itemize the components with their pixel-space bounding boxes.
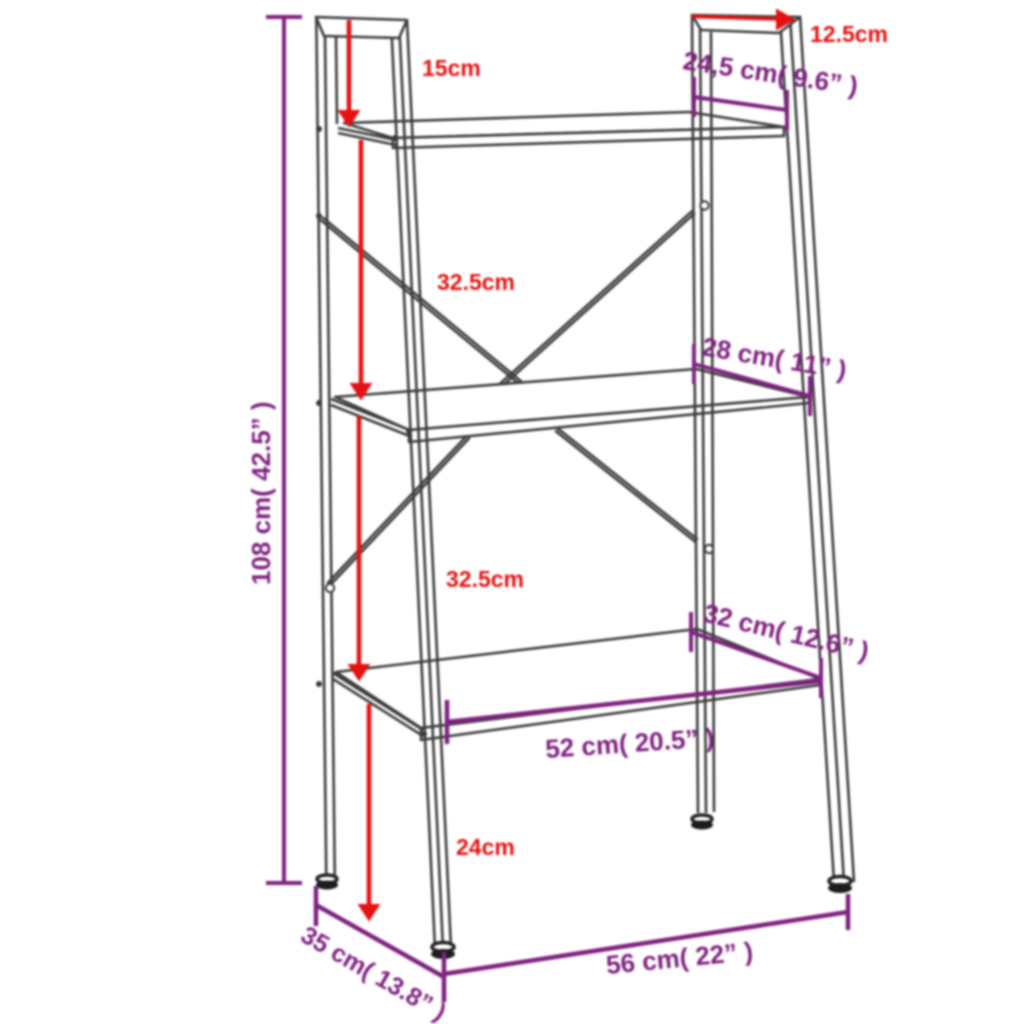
svg-text:24cm: 24cm: [456, 834, 515, 860]
svg-text:32.5cm: 32.5cm: [446, 566, 524, 592]
svg-text:12.5cm: 12.5cm: [810, 21, 888, 47]
svg-text:32.5cm: 32.5cm: [437, 269, 515, 295]
svg-text:15cm: 15cm: [422, 55, 481, 81]
svg-text:108 cm( 42.5” ): 108 cm( 42.5” ): [246, 401, 276, 585]
